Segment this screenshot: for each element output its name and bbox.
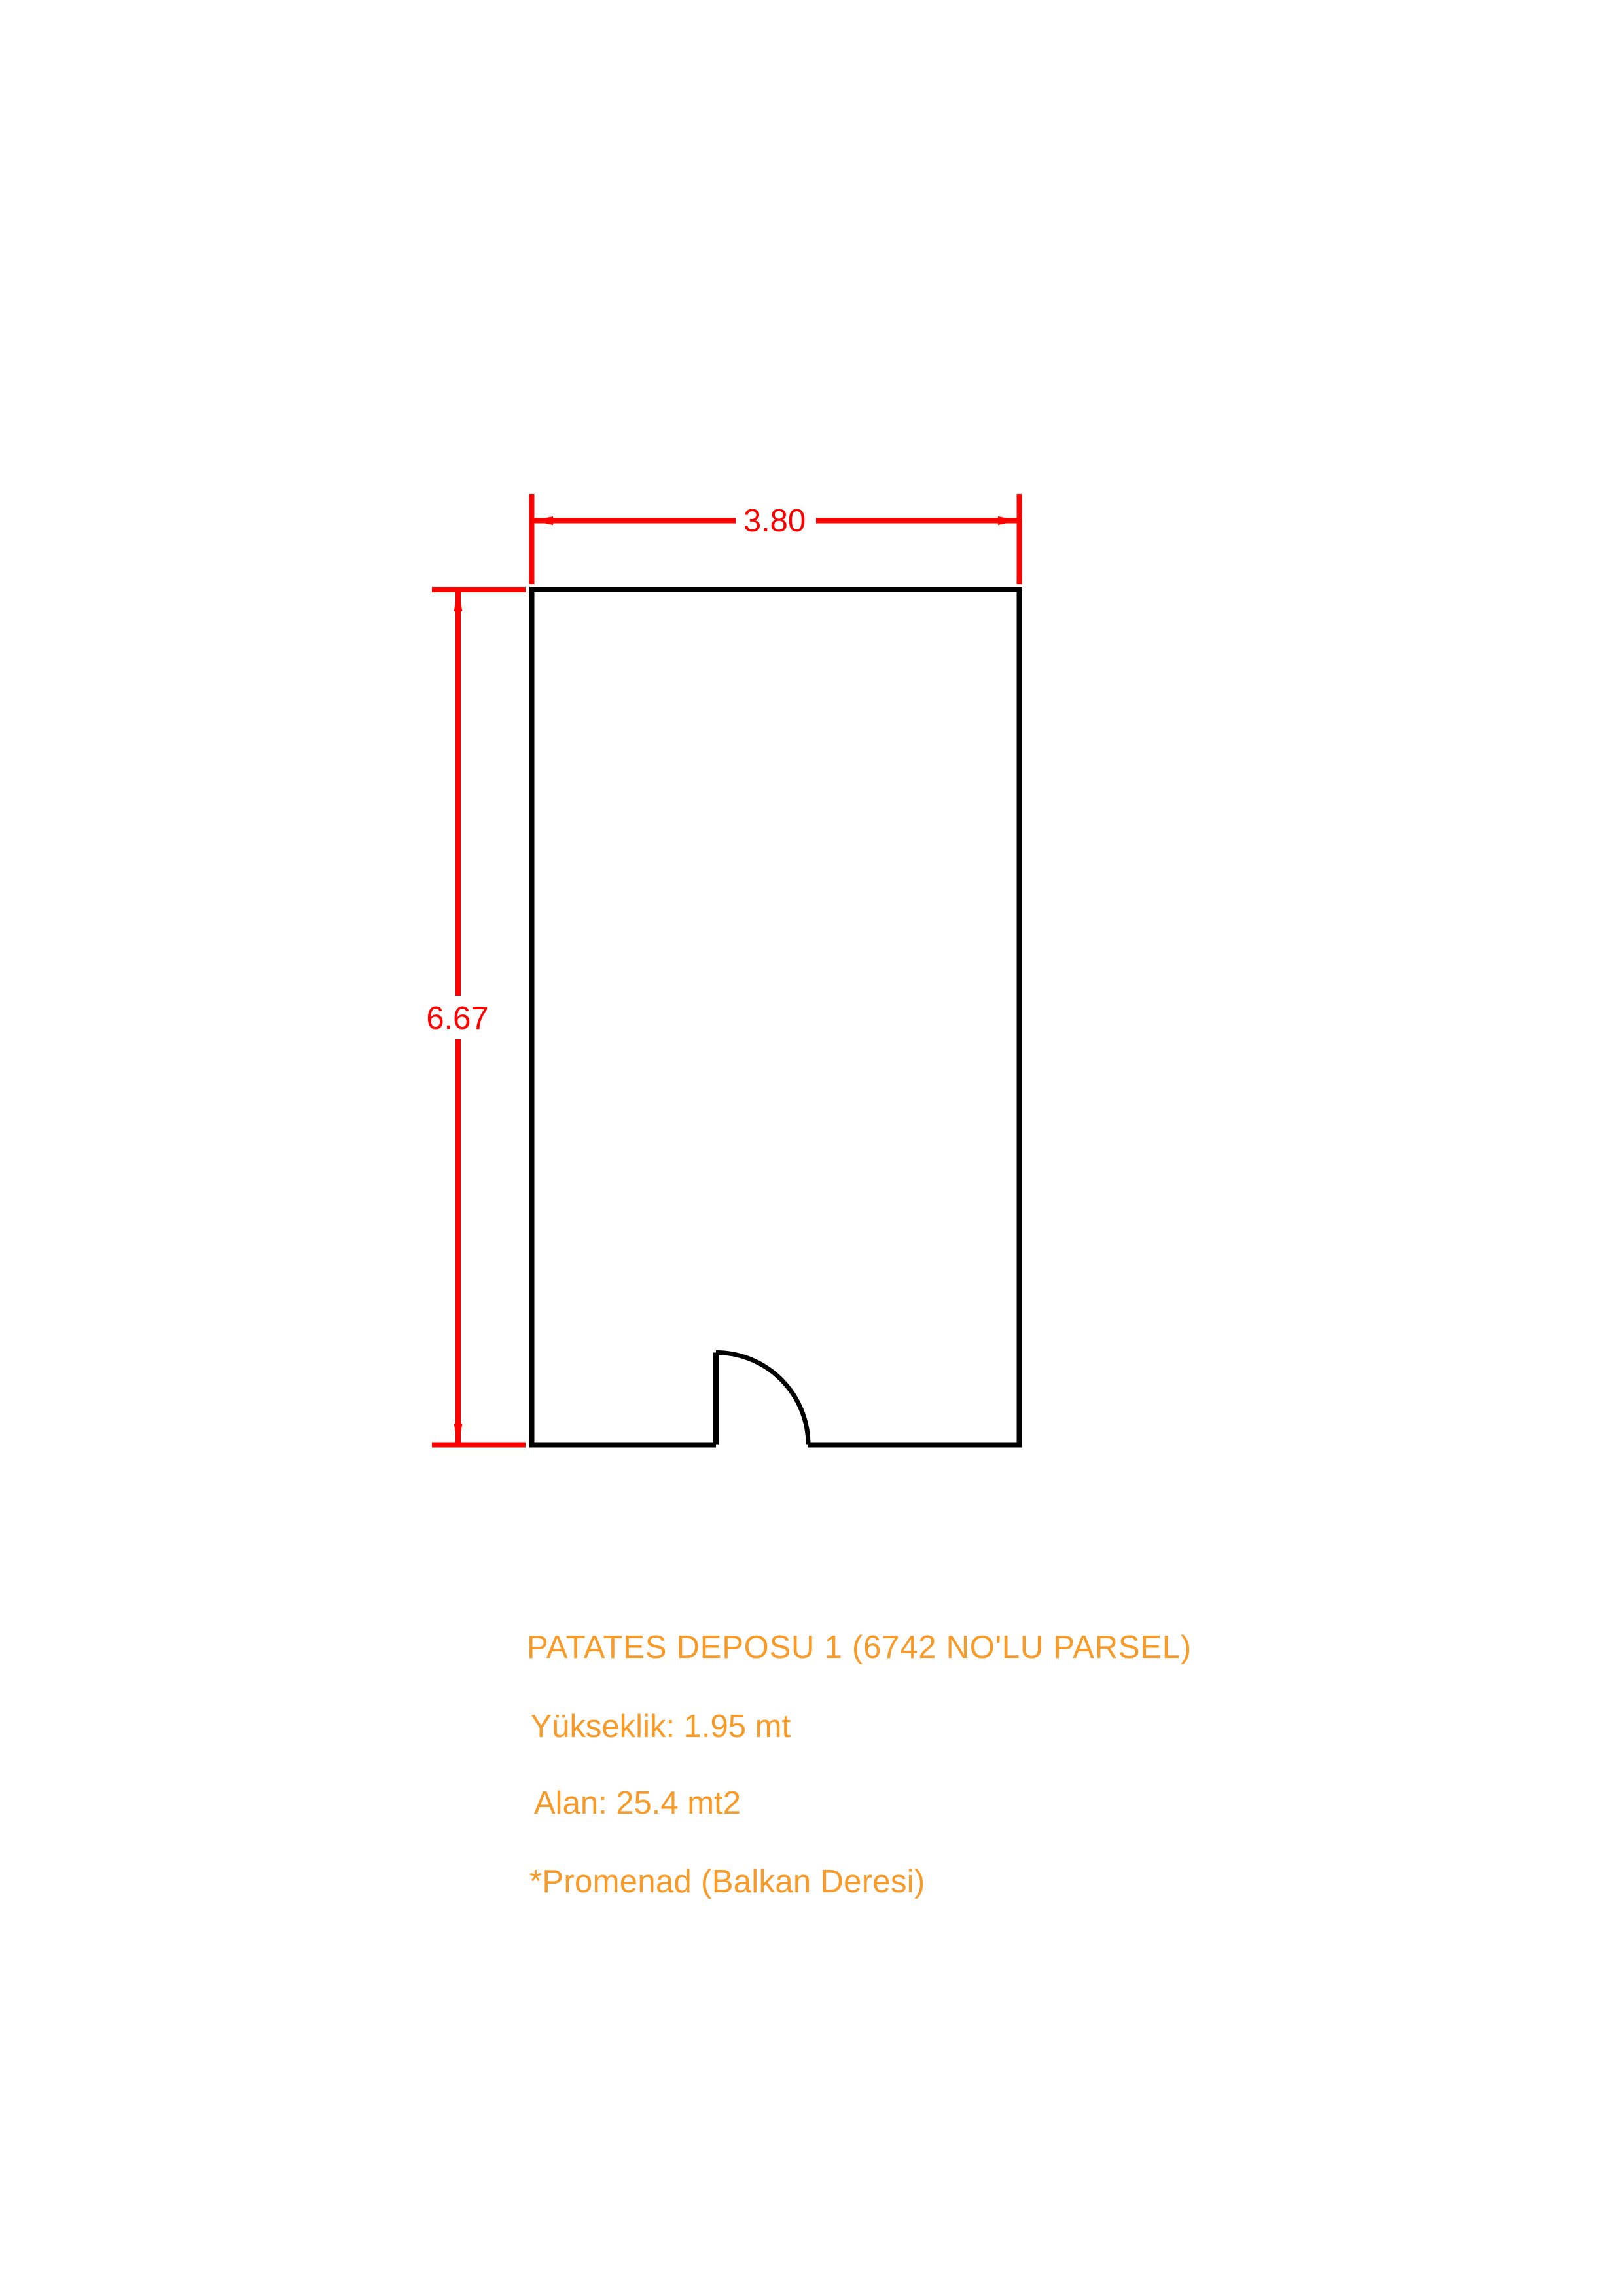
svg-text:*Promenad (Balkan Deresi): *Promenad (Balkan Deresi) — [529, 1864, 925, 1899]
svg-text:Yükseklik: 1.95 mt: Yükseklik: 1.95 mt — [531, 1709, 791, 1744]
svg-text:Alan: 25.4 mt2: Alan: 25.4 mt2 — [534, 1785, 741, 1821]
svg-text:3.80: 3.80 — [743, 503, 806, 539]
svg-text:PATATES DEPOSU 1 (6742 NO'LU P: PATATES DEPOSU 1 (6742 NO'LU PARSEL) — [527, 1630, 1192, 1665]
svg-text:6.67: 6.67 — [426, 1001, 488, 1036]
